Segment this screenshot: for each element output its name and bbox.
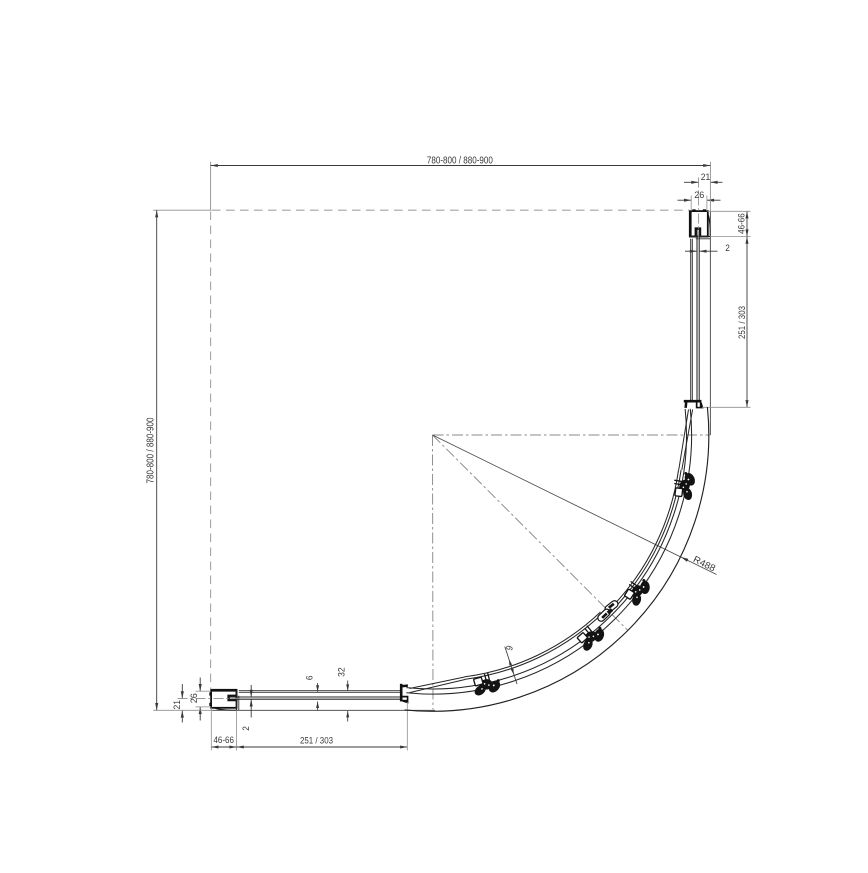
svg-text:251 / 303: 251 / 303 bbox=[300, 736, 333, 746]
svg-text:780-800 / 880-900: 780-800 / 880-900 bbox=[145, 417, 156, 483]
svg-text:2: 2 bbox=[725, 243, 730, 253]
svg-text:46-66: 46-66 bbox=[736, 213, 746, 234]
svg-text:26: 26 bbox=[189, 693, 199, 703]
svg-text:21: 21 bbox=[701, 172, 711, 182]
svg-text:21: 21 bbox=[172, 700, 182, 710]
svg-text:32: 32 bbox=[337, 667, 347, 677]
svg-text:2: 2 bbox=[241, 726, 251, 731]
svg-text:6: 6 bbox=[305, 676, 315, 681]
svg-text:251 / 303: 251 / 303 bbox=[737, 306, 747, 339]
svg-text:26: 26 bbox=[694, 190, 704, 200]
svg-text:780-800 / 880-900: 780-800 / 880-900 bbox=[427, 155, 493, 166]
svg-text:46-66: 46-66 bbox=[213, 735, 234, 745]
